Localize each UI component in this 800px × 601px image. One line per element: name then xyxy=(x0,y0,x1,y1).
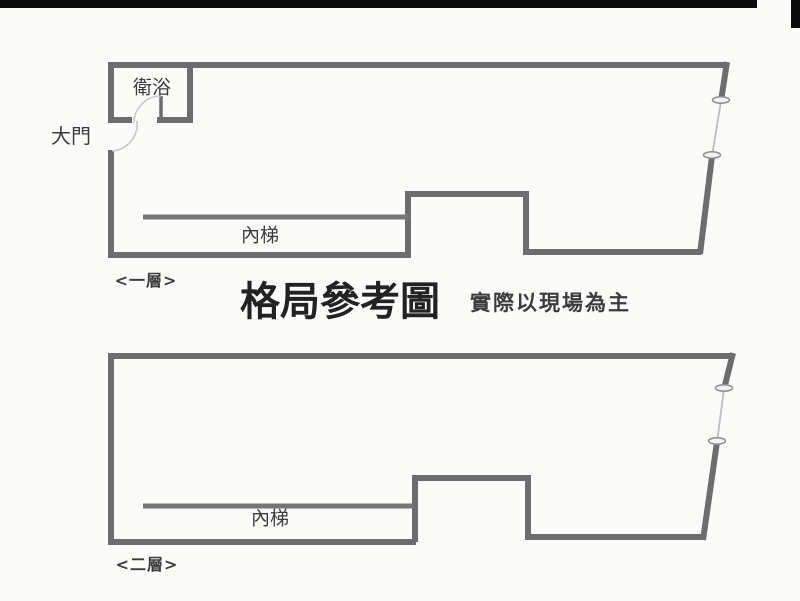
bathroom-label: 衛浴 xyxy=(133,79,171,98)
floor2-walls xyxy=(108,353,733,545)
main-door-swing-arc xyxy=(112,121,137,151)
floor2-plan xyxy=(108,353,733,545)
floor1-stairs-label: 內梯 xyxy=(241,227,279,246)
floor2-name-label: <二層> xyxy=(116,557,179,573)
main-door-label: 大門 xyxy=(51,126,91,146)
floor2-window-glass-line xyxy=(717,389,724,442)
floor2-window-tick-bottom xyxy=(709,438,726,444)
floorplan-page: 衛浴 大門 內梯 <一層> 格局參考圖 實際以現場為主 內梯 <二層> xyxy=(0,0,800,601)
floor1-name-label: <一層> xyxy=(115,273,178,289)
floor1-window-tick-top xyxy=(713,97,730,103)
floor1-window-glass-line xyxy=(712,101,721,156)
page-subtitle: 實際以現場為主 xyxy=(470,293,631,314)
floor2-window-tick-top xyxy=(716,385,733,391)
page-title: 格局參考圖 xyxy=(240,282,440,322)
floor1-plan xyxy=(108,62,730,258)
floor1-window-tick-bottom xyxy=(704,152,721,158)
bathroom-door-swing-arc xyxy=(134,96,161,123)
floor2-stairs-label: 內梯 xyxy=(251,510,289,529)
floor1-walls xyxy=(108,62,727,258)
